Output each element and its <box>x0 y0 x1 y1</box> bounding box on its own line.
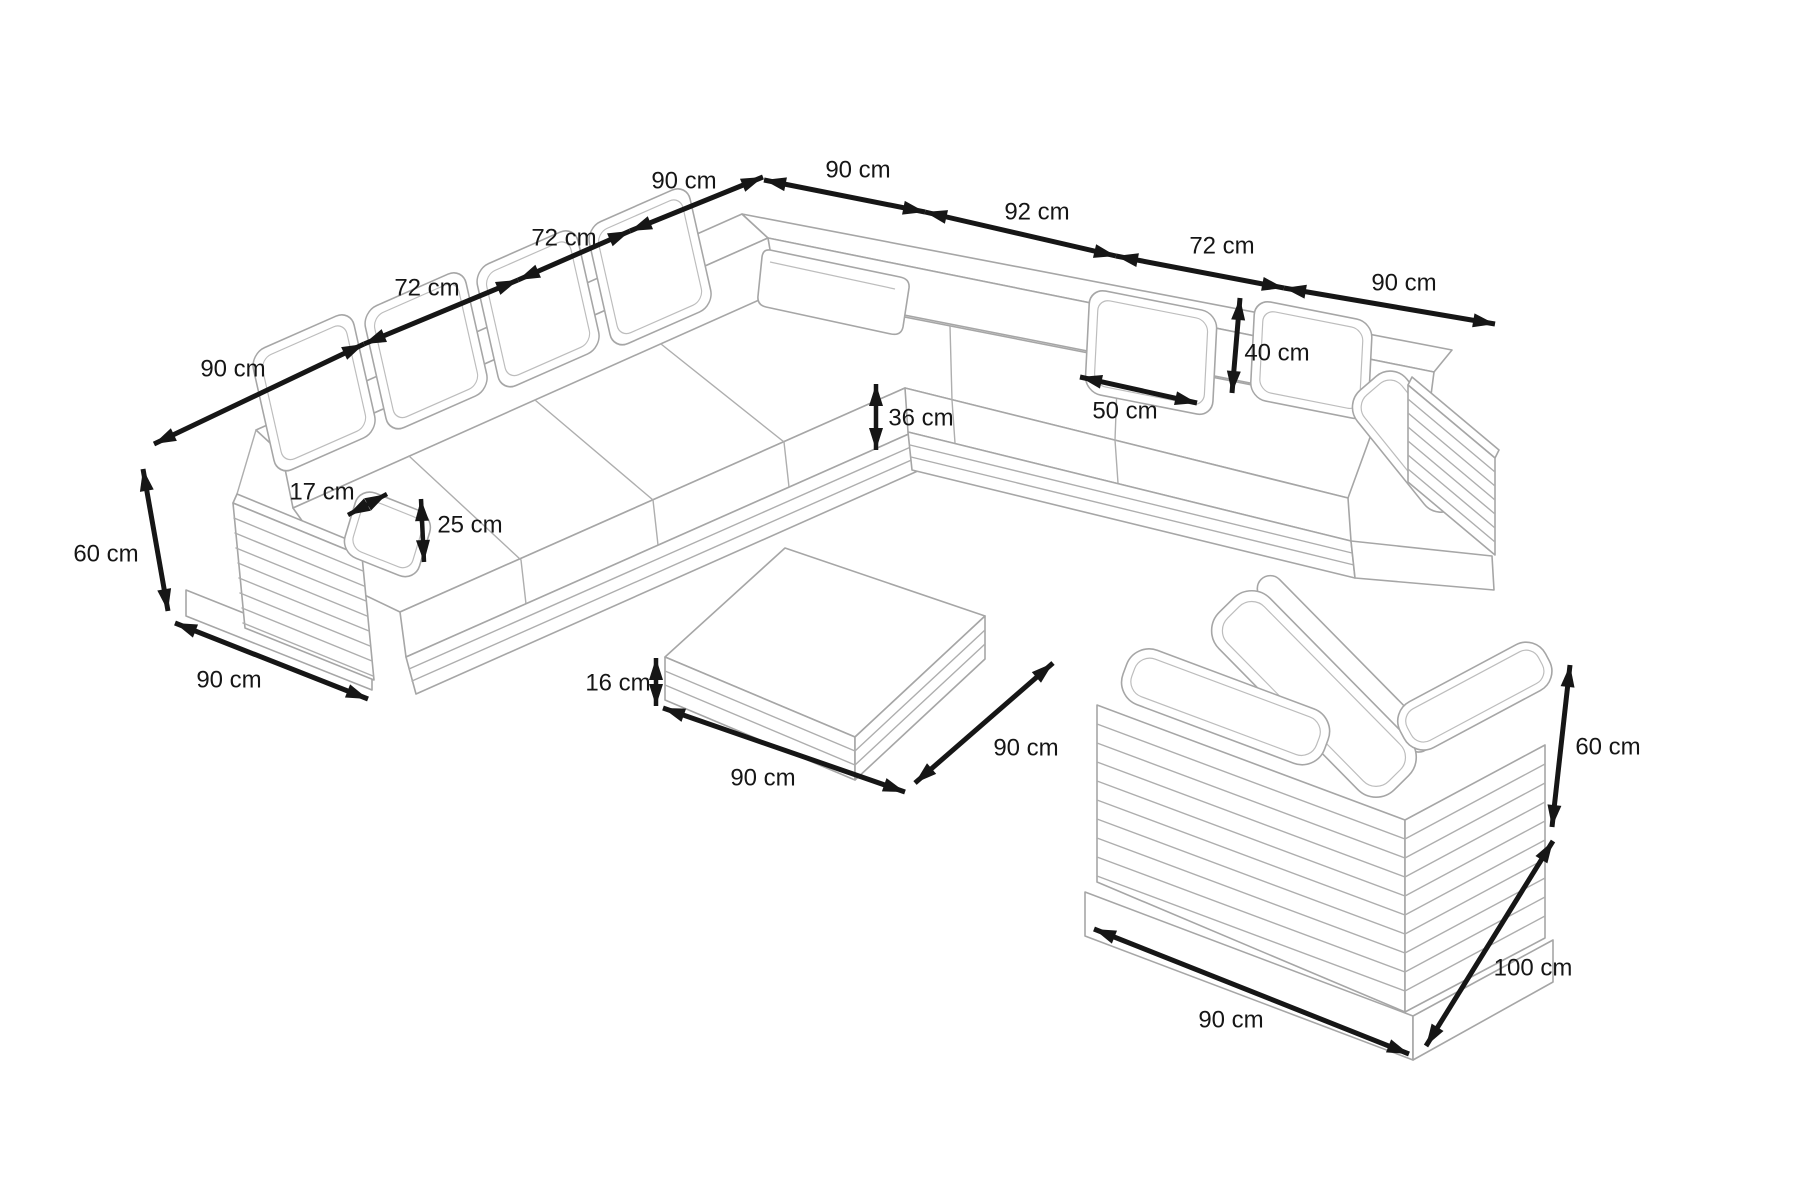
armchair-right-arm-cushion <box>1390 634 1560 757</box>
sofa-base-right-end <box>1351 541 1494 590</box>
dim-label-armrest-height: 25 cm <box>437 512 502 539</box>
dim-label-armrest-width: 17 cm <box>289 479 354 506</box>
dim-label-seat-height: 36 cm <box>888 405 953 432</box>
furniture-dimension-diagram: 90 cm 72 cm 72 cm 90 cm 90 cm 92 cm 72 c… <box>0 0 1798 1200</box>
dim-label-sofa-back-left-1: 90 cm <box>200 356 265 383</box>
dim-label-cushion-width: 50 cm <box>1092 398 1157 425</box>
dim-label-table-depth: 90 cm <box>993 735 1058 762</box>
dim-arrow-sofa-back-right-1 <box>764 180 925 212</box>
dim-arrow-armchair-height <box>1552 665 1570 827</box>
dim-label-cushion-height: 40 cm <box>1244 340 1309 367</box>
dim-label-sofa-back-right-2: 92 cm <box>1004 199 1069 226</box>
sofa-left-end-edge <box>237 430 256 494</box>
armchair-drawing <box>1085 566 1560 1060</box>
dim-label-sofa-back-right-4: 90 cm <box>1371 270 1436 297</box>
dim-label-sofa-height: 60 cm <box>73 541 138 568</box>
dim-label-table-width: 90 cm <box>730 765 795 792</box>
dim-label-table-height: 16 cm <box>585 670 650 697</box>
dim-label-armchair-height: 60 cm <box>1575 734 1640 761</box>
dim-label-sofa-back-left-4: 90 cm <box>651 168 716 195</box>
dim-arrow-sofa-height <box>143 469 168 611</box>
dim-label-sofa-back-left-3: 72 cm <box>531 225 596 252</box>
dim-label-sofa-back-right-3: 72 cm <box>1189 233 1254 260</box>
dim-arrow-sofa-back-right-3 <box>1116 256 1284 288</box>
dim-label-sofa-depth: 90 cm <box>196 667 261 694</box>
diagram-page: 90 cm 72 cm 72 cm 90 cm 90 cm 92 cm 72 c… <box>0 0 1798 1200</box>
coffee-table-drawing <box>665 548 985 780</box>
dim-label-armchair-width: 90 cm <box>1198 1007 1263 1034</box>
dim-label-sofa-back-right-1: 90 cm <box>825 157 890 184</box>
dim-label-sofa-back-left-2: 72 cm <box>394 275 459 302</box>
dim-label-armchair-depth: 100 cm <box>1494 955 1573 982</box>
dim-arrow-armrest-height <box>421 499 424 562</box>
